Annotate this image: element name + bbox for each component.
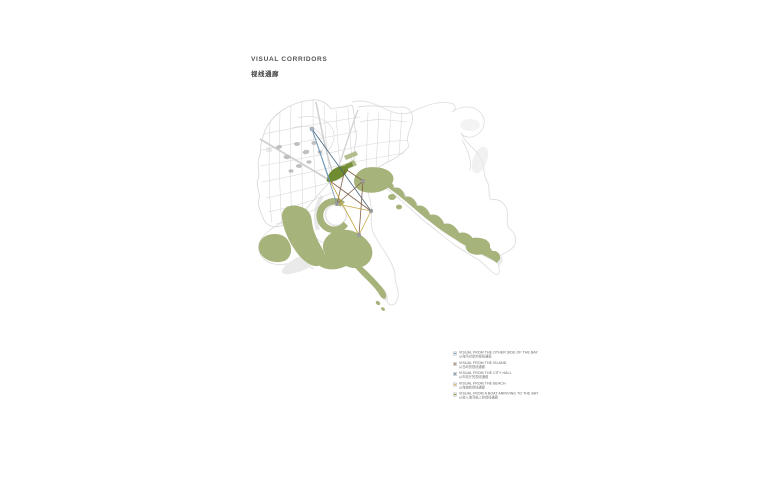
legend-label-zh: 从驶入海湾船上的视线通廊 xyxy=(459,396,539,400)
far-left-park xyxy=(259,234,291,262)
legend: VISUAL FROM THE OTHER SIDE OF THE BAY 从海… xyxy=(453,351,653,461)
viewpoint-icon xyxy=(453,352,457,356)
south-tail xyxy=(350,258,386,299)
title-block: VISUAL CORRIDORS 视线通廊 xyxy=(251,56,327,78)
viewpoint-marker xyxy=(361,179,365,183)
legend-item: VISUAL FROM THE CITY HALL 从市政厅的视线通廊 xyxy=(453,372,613,380)
legend-label-zh: 从海湾对岸的视线通廊 xyxy=(459,355,538,359)
viewpoint-marker xyxy=(357,233,361,237)
legend-item: VISUAL FROM THE OTHER SIDE OF THE BAY 从海… xyxy=(453,351,613,359)
legend-item: VISUAL FROM A BOAT ARRIVING TO THE BAY 从… xyxy=(453,392,613,400)
legend-label-zh: 从岛屿的视线通廊 xyxy=(459,365,506,369)
coastline xyxy=(259,101,516,305)
page-subtitle-zh: 视线通廊 xyxy=(251,68,327,78)
viewpoint-icon xyxy=(453,372,457,376)
viewpoint-marker xyxy=(335,202,339,206)
viewpoint-icon xyxy=(453,393,457,397)
page-title: VISUAL CORRIDORS xyxy=(251,56,327,63)
viewpoint-icon xyxy=(453,362,457,366)
legend-item: VISUAL FROM THE ISLAND 从岛屿的视线通廊 xyxy=(453,361,613,369)
south-park xyxy=(318,230,373,270)
viewpoint-icon xyxy=(453,382,457,386)
legend-item: VISUAL FROM THE BEACH 从海滩的视线通廊 xyxy=(453,382,613,390)
viewpoint-marker xyxy=(369,209,373,213)
legend-label-zh: 从海滩的视线通廊 xyxy=(459,386,506,390)
page: VISUAL CORRIDORS 视线通廊 VISUAL FROM THE OT… xyxy=(0,0,768,480)
legend-label-zh: 从市政厅的视线通廊 xyxy=(459,376,512,380)
